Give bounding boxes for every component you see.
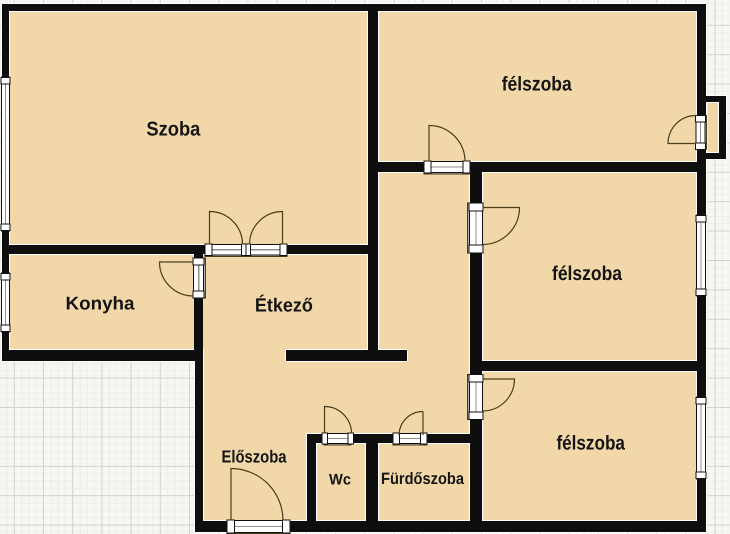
svg-text:Wc: Wc [329,471,351,488]
svg-text:Konyha: Konyha [66,293,136,314]
svg-text:Étkező: Étkező [255,295,313,317]
svg-text:Előszoba: Előszoba [222,447,287,467]
svg-text:félszoba: félszoba [556,432,625,454]
svg-text:Szoba: Szoba [146,119,201,141]
svg-text:Fürdőszoba: Fürdőszoba [381,470,465,488]
svg-text:félszoba: félszoba [502,74,573,96]
svg-text:félszoba: félszoba [552,263,623,285]
